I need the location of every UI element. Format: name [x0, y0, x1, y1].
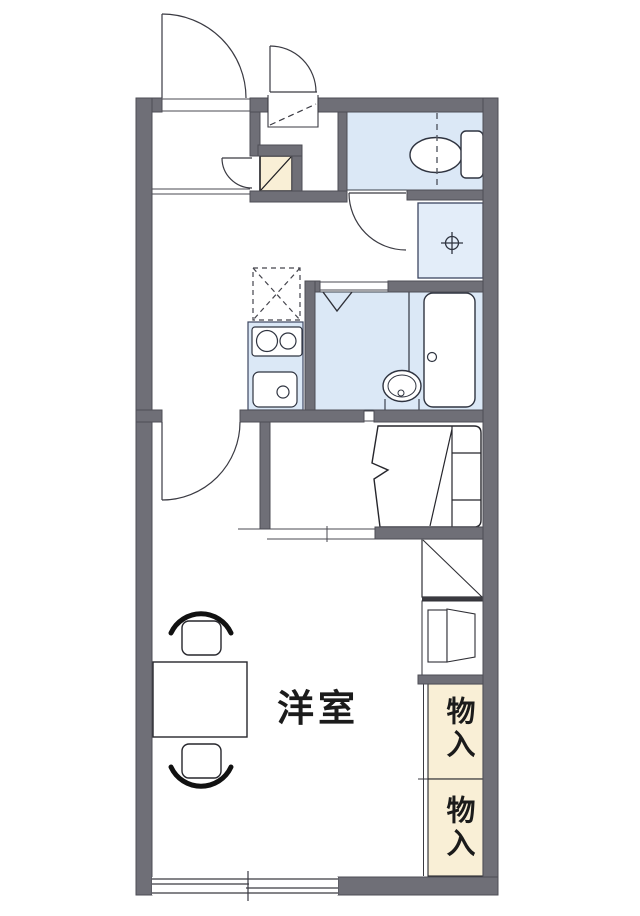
shelf-bottom-wall [418, 675, 483, 684]
western-room-label: 洋室 [277, 678, 359, 732]
outer-wall-left [136, 98, 152, 895]
outer-wall-top-mid [250, 98, 268, 112]
storage-top-label: 物入 [443, 696, 472, 762]
alcove-threshold [238, 526, 375, 542]
bed-nook-bottom-wall [375, 527, 483, 539]
bath-top-wall-left [315, 281, 320, 292]
storage-bottom-label: 物入 [443, 795, 472, 861]
mid-wall-right [374, 410, 483, 422]
washing-machine-pan [418, 203, 483, 278]
genkan-outer-door [270, 46, 317, 92]
bathroom-threshold [320, 282, 388, 290]
main-room-door [162, 422, 240, 500]
kitchen-sink-icon [253, 372, 297, 407]
main-room-door-arc [162, 422, 240, 500]
toilet-bottom-wall [407, 190, 483, 200]
kitchen-bath-divider-wall [305, 281, 315, 412]
outer-wall-bottom [338, 877, 498, 895]
toilet-door [349, 193, 406, 250]
toilet-left-wall [338, 112, 347, 191]
bed [372, 426, 481, 527]
genkan-outer-door-arc [270, 46, 316, 92]
mid-wall-center [240, 410, 364, 422]
mid-wall-notch [364, 411, 374, 421]
table [153, 662, 247, 737]
genkan-inner-wall-h [258, 145, 302, 156]
toilet-door-arc [349, 193, 406, 250]
genkan-kitchen-door-arc [222, 158, 252, 188]
alcove-wall [260, 422, 270, 529]
shelf-unit [422, 601, 483, 675]
bathtub [424, 293, 475, 407]
chair-bottom [171, 744, 231, 786]
stove-burners-icon [252, 327, 302, 356]
shoe-cabinet [260, 156, 292, 191]
chair-top [171, 614, 231, 655]
genkan-inner-wall-v [292, 156, 302, 191]
floor-plan: 洋室 物入 物入 [0, 0, 640, 916]
outer-wall-right [483, 98, 498, 895]
entry-door-arc [162, 14, 246, 98]
genkan-bottom-wall [250, 191, 347, 202]
mid-wall-left [136, 410, 162, 422]
window-bottom [152, 871, 338, 901]
floor-plan-drawing [0, 0, 640, 916]
closet [422, 539, 483, 601]
bath-top-wall-right [388, 281, 483, 292]
refrigerator-space [253, 268, 300, 320]
outer-wall-top-right [318, 98, 498, 112]
genkan-entry [268, 95, 318, 127]
kitchen-counter [248, 322, 303, 410]
kitchen-boundary-lines [152, 189, 250, 194]
entry-opening-lines [162, 99, 250, 111]
entry-door [162, 14, 246, 98]
storage-sliding-door [418, 684, 428, 876]
genkan-kitchen-door [222, 158, 252, 188]
